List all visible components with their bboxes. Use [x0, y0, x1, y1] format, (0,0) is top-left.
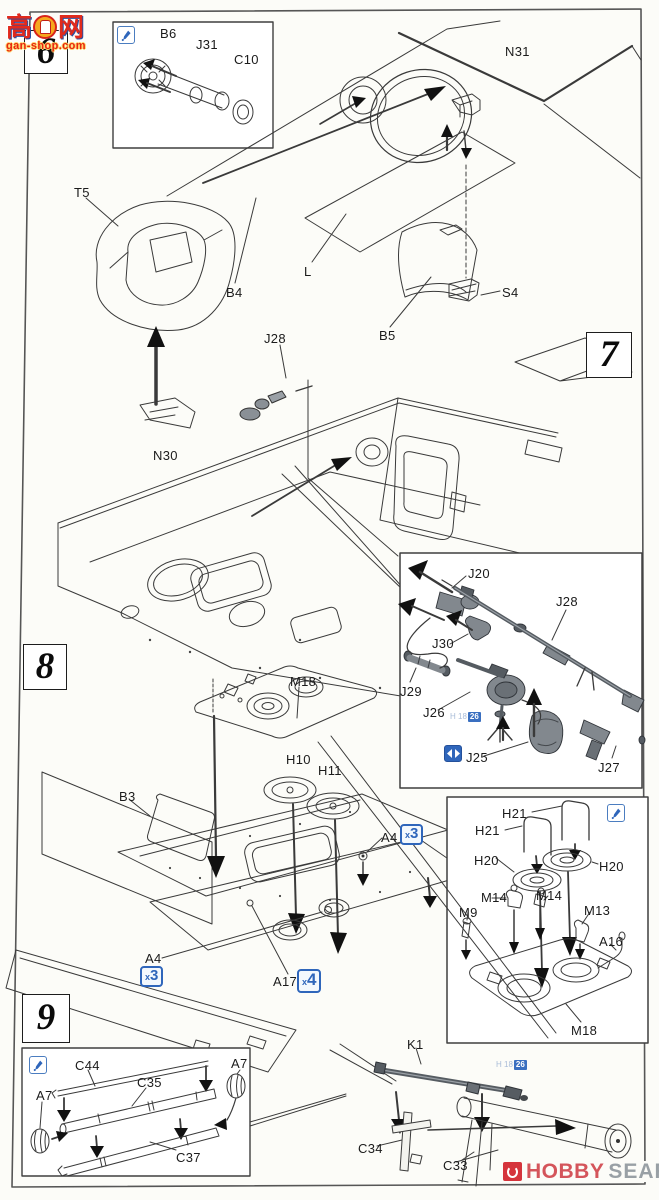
- part-label-n31: N31: [505, 44, 530, 59]
- part-label-j20: J20: [468, 566, 490, 581]
- part-label-h21: H21: [502, 806, 527, 821]
- paint-callout-badge: H 18 26: [450, 712, 481, 722]
- quantity-badge-x3: x3: [400, 824, 423, 845]
- step-9-box: 9: [22, 994, 70, 1043]
- hobby-search-logo: HOBBY SEARCH: [501, 1161, 659, 1182]
- watermark-mascot-icon: [33, 15, 57, 39]
- quantity-badge-x3: x3: [140, 966, 163, 987]
- paint-code-number: 26: [514, 1060, 527, 1070]
- part-label-c10: C10: [234, 52, 259, 67]
- part-label-a7: A7: [36, 1088, 53, 1103]
- part-label-h20: H20: [599, 859, 624, 874]
- part-label-l: L: [304, 264, 312, 279]
- watermark-logo: 高 网 gan-shop.com: [6, 14, 118, 52]
- part-label-a17: A17: [273, 974, 297, 989]
- swap-arrows-icon: [444, 745, 462, 762]
- part-label-j28: J28: [264, 331, 286, 346]
- hobby-search-icon: [503, 1162, 522, 1181]
- part-label-h11: H11: [318, 763, 342, 778]
- part-label-c44: C44: [75, 1058, 100, 1073]
- part-label-s4: S4: [502, 285, 519, 300]
- part-label-j28: J28: [556, 594, 578, 609]
- step-8-number: 8: [36, 648, 55, 685]
- paint-brush-icon: [29, 1056, 47, 1074]
- part-label-j26: J26: [423, 705, 445, 720]
- part-label-h21: H21: [475, 823, 500, 838]
- part-label-m18: M18: [290, 674, 316, 689]
- step7-weapons-inset-art: [398, 553, 645, 788]
- part-label-h10: H10: [286, 752, 311, 767]
- step-7-number: 7: [600, 336, 619, 373]
- part-label-a4: A4: [381, 830, 398, 845]
- part-label-j30: J30: [432, 636, 454, 651]
- part-label-c35: C35: [137, 1075, 162, 1090]
- part-label-b5: B5: [379, 328, 396, 343]
- part-label-t5: T5: [74, 185, 90, 200]
- part-label-a16: A16: [599, 934, 623, 949]
- part-label-j29: J29: [400, 684, 422, 699]
- part-label-m13: M13: [584, 903, 610, 918]
- part-label-c34: C34: [358, 1141, 383, 1156]
- part-label-b6: B6: [160, 26, 177, 41]
- paint-code-prefix: H 18: [496, 1060, 513, 1070]
- watermark-char-right: 网: [58, 14, 84, 40]
- part-label-k1: K1: [407, 1037, 424, 1052]
- part-label-a4: A4: [145, 951, 162, 966]
- part-label-h20: H20: [474, 853, 499, 868]
- watermark-site-text: gan-shop.com: [6, 40, 118, 52]
- part-label-j31: J31: [196, 37, 218, 52]
- part-label-m14: M14: [536, 888, 562, 903]
- paint-code-prefix: H 18: [450, 712, 467, 722]
- part-label-m18: M18: [571, 1023, 597, 1038]
- step-8-box: 8: [23, 644, 67, 690]
- step6-art: [86, 21, 641, 428]
- part-label-n30: N30: [153, 448, 178, 463]
- paint-brush-icon: [117, 26, 135, 44]
- part-label-c37: C37: [176, 1150, 201, 1165]
- step-7-box: 7: [586, 332, 632, 378]
- part-label-c33: C33: [443, 1158, 468, 1173]
- part-label-b3: B3: [119, 789, 136, 804]
- step-9-number: 9: [37, 999, 56, 1036]
- brand-word-hobby: HOBBY: [526, 1161, 604, 1182]
- paint-code-number: 26: [468, 712, 481, 722]
- paint-callout-badge: H 18 26: [496, 1060, 527, 1070]
- part-label-j25: J25: [466, 750, 488, 765]
- part-label-m14: M14: [481, 890, 507, 905]
- part-label-m9: M9: [459, 905, 478, 920]
- part-label-b4: B4: [226, 285, 243, 300]
- part-label-j27: J27: [598, 760, 620, 775]
- instruction-sheet: 高 网 gan-shop.com 6 7 8 9 B6 J31 C10 N31 …: [0, 0, 659, 1200]
- brand-word-search: SEARCH: [608, 1161, 659, 1182]
- watermark-char-left: 高: [6, 14, 32, 40]
- quantity-badge-x4: x4: [297, 969, 321, 993]
- part-label-a7: A7: [231, 1056, 248, 1071]
- paint-brush-icon: [607, 804, 625, 822]
